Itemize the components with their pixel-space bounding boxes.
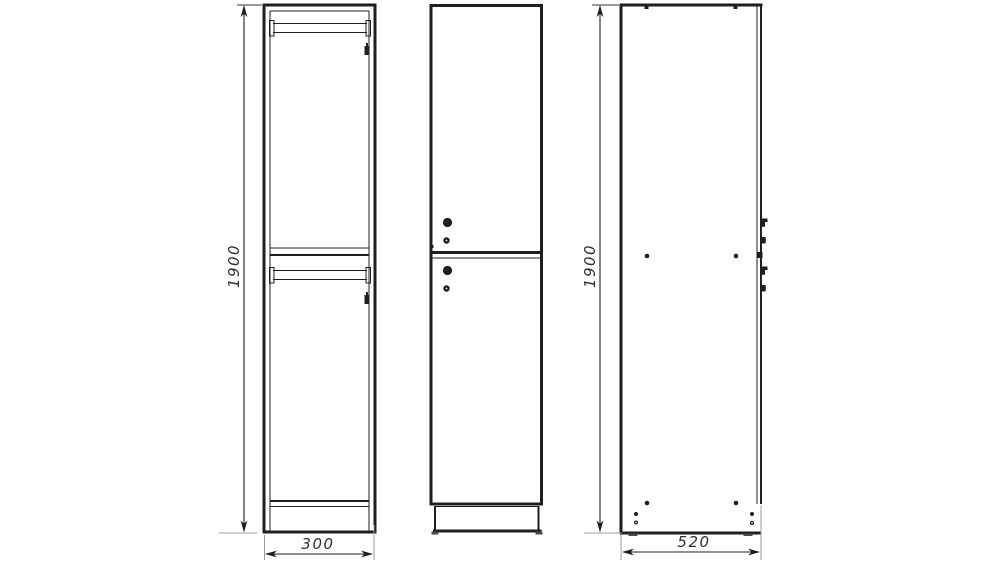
side-handle-lower [762, 267, 768, 275]
lower-door-knob [443, 266, 452, 275]
side-lock-lower [761, 285, 766, 292]
corner-screw-left-upper [634, 512, 638, 516]
side-handle-upper [762, 219, 768, 227]
shelf-pin-right [734, 254, 739, 259]
side-foot-left [629, 534, 638, 537]
bottom-pin-right [734, 501, 739, 506]
dim-side-height: 1900 [581, 5, 622, 533]
upper-rail-bracket-right [366, 21, 371, 37]
bottom-pin-left [645, 501, 650, 506]
upper-door-knob [443, 218, 452, 227]
base-foot-right [536, 532, 543, 535]
shelf-pin-left [645, 254, 650, 259]
dim-side-depth-label: 520 [677, 533, 710, 551]
top-screw-left [645, 5, 649, 10]
hinge-mark-lower-tab [366, 292, 368, 295]
door-gap-hinge-nub [431, 245, 434, 248]
side-lock-upper [761, 237, 766, 244]
upper-door-lock-keyhole [446, 240, 448, 242]
door-outline [431, 6, 542, 505]
drawing-svg: 1900 300 1900 520 [0, 0, 1000, 565]
lower-rail-bracket-right [366, 268, 371, 284]
top-screw-right [734, 5, 738, 10]
upper-rail-bracket-left [270, 21, 275, 37]
lower-door-lock-keyhole [446, 288, 448, 290]
front-view-open [263, 4, 377, 533]
hinge-mark-upper-tab [366, 43, 368, 46]
hinge-mark-upper [365, 46, 369, 55]
base-foot-left [432, 532, 439, 535]
lower-rail-bracket-left [270, 268, 275, 284]
dim-front-width-label: 300 [301, 535, 334, 553]
side-foot-right [744, 534, 753, 537]
corner-screw-right-upper [750, 512, 754, 516]
corner-screw-left-lower-hole [635, 522, 637, 524]
side-view [620, 4, 768, 536]
dim-front-width: 300 [265, 525, 375, 560]
corner-screw-right-lower-hole [751, 522, 753, 524]
dim-side-height-label: 1900 [581, 244, 599, 288]
dim-front-height: 1900 [219, 5, 263, 533]
side-shelf-connector [757, 252, 763, 258]
dim-front-height-label: 1900 [225, 244, 243, 288]
technical-drawing-canvas: 1900 300 1900 520 [0, 0, 1000, 565]
front-view-doors [431, 6, 543, 535]
hinge-mark-lower [365, 295, 369, 304]
